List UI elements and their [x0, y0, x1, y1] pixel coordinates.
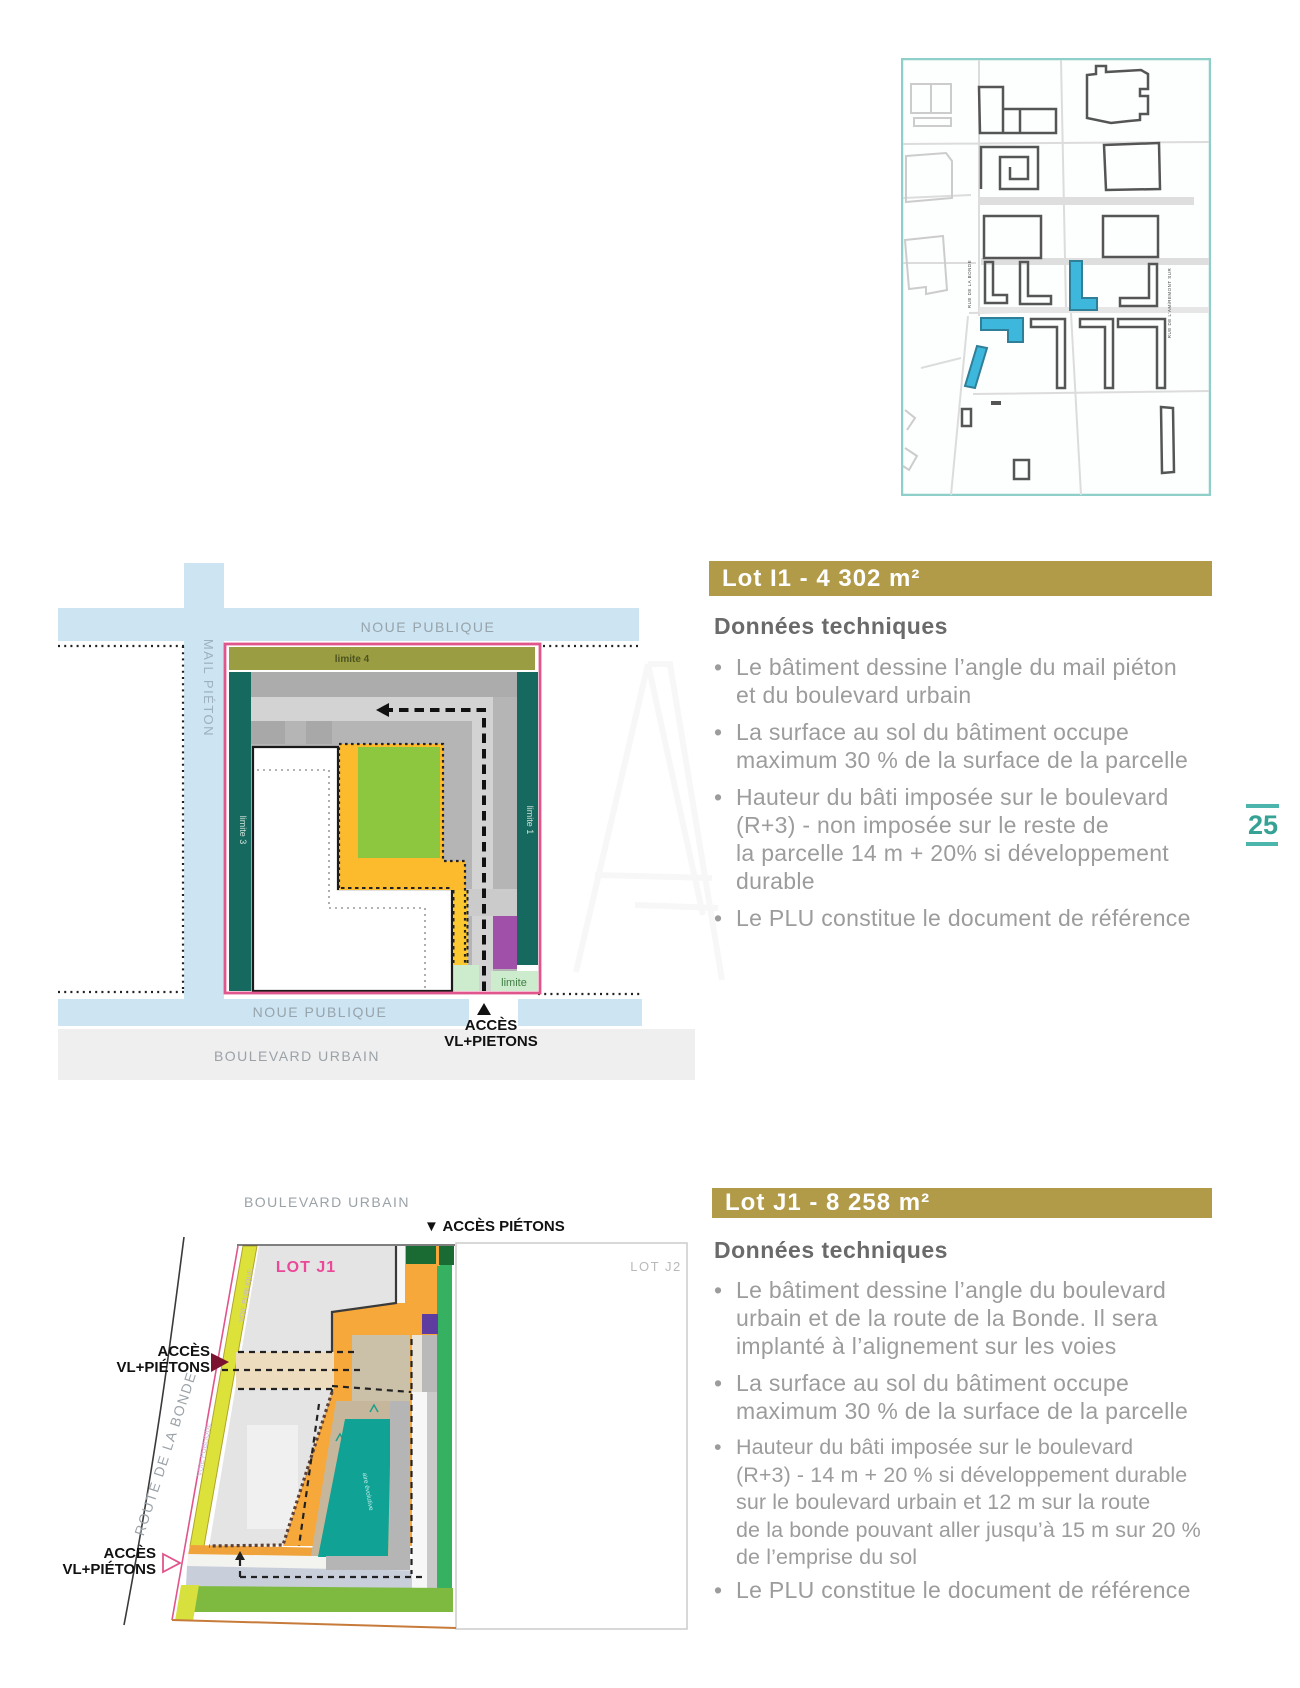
svg-text:ROUTE DE LA BONDE: ROUTE DE LA BONDE — [131, 1369, 199, 1537]
svg-text:VL+PIÉTONS: VL+PIÉTONS — [116, 1359, 210, 1376]
svg-text:VL+PIETONS: VL+PIETONS — [444, 1033, 538, 1050]
svg-text:limite: limite — [501, 977, 527, 989]
svg-text:NOUE PUBLIQUE: NOUE PUBLIQUE — [253, 1004, 388, 1020]
svg-text:▼ ACCÈS PIÉTONS: ▼ ACCÈS PIÉTONS — [424, 1218, 565, 1235]
svg-text:MAIL PIÉTON: MAIL PIÉTON — [201, 639, 216, 737]
svg-text:limite 3: limite 3 — [238, 816, 248, 845]
svg-text:RUE DE L'AMiREMONT SUR: RUE DE L'AMiREMONT SUR — [1167, 267, 1172, 338]
svg-text:ACCÈS: ACCÈS — [157, 1343, 210, 1360]
svg-text:limite 1: limite 1 — [525, 806, 535, 835]
svg-text:ACCÈS: ACCÈS — [103, 1545, 156, 1562]
svg-text:RUE DE LA BONDE: RUE DE LA BONDE — [967, 260, 972, 308]
svg-text:NOUE PUBLIQUE: NOUE PUBLIQUE — [361, 619, 496, 635]
svg-text:limite 4: limite 4 — [335, 654, 370, 665]
svg-text:BOULEVARD URBAIN: BOULEVARD URBAIN — [214, 1048, 380, 1064]
svg-text:LOT J1: LOT J1 — [276, 1259, 336, 1276]
svg-text:LOT J2: LOT J2 — [630, 1259, 681, 1274]
svg-text:VL+PIÉTONS: VL+PIÉTONS — [62, 1561, 156, 1578]
svg-text:BOULEVARD URBAIN: BOULEVARD URBAIN — [244, 1194, 410, 1210]
svg-text:ACCÈS: ACCÈS — [465, 1017, 518, 1034]
